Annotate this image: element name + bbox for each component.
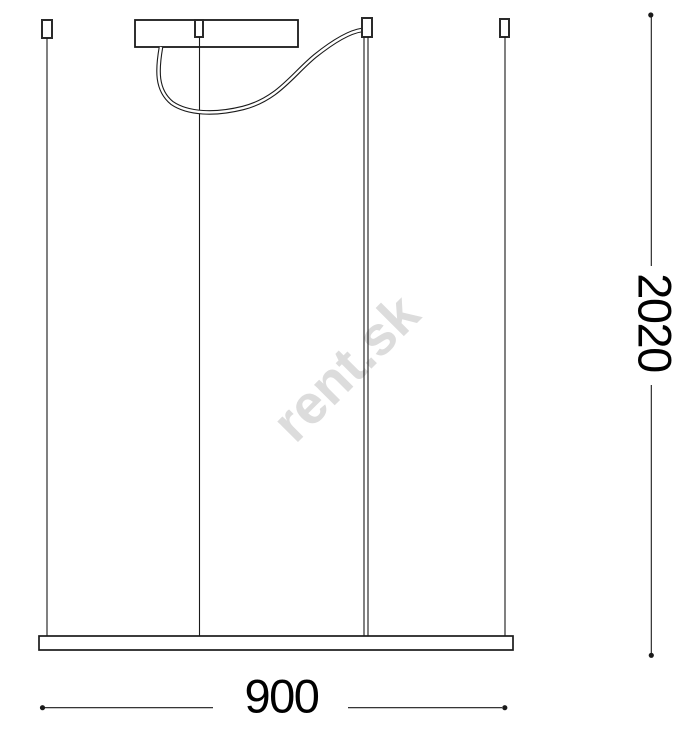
width-dimension-label: 900 xyxy=(245,670,319,723)
lamp-dimension-drawing: rent.sk 900 xyxy=(0,0,692,738)
ceiling-canopy xyxy=(135,20,298,47)
wire-connector-left xyxy=(42,20,52,38)
height-dimension-label: 2020 xyxy=(629,273,682,372)
wire-connector-power xyxy=(362,18,372,37)
height-dimension: 2020 xyxy=(629,12,682,658)
cable-gland xyxy=(195,20,203,37)
width-dimension: 900 xyxy=(40,670,508,723)
height-dim-dot-top xyxy=(648,12,653,17)
drawing-svg: rent.sk 900 xyxy=(0,0,692,738)
width-dim-dot-left xyxy=(40,705,45,710)
height-dim-dot-bottom xyxy=(649,653,654,658)
light-bar xyxy=(39,636,513,650)
wire-connector-right xyxy=(500,19,509,37)
watermark: rent.sk xyxy=(260,282,432,454)
width-dim-dot-right xyxy=(502,705,507,710)
